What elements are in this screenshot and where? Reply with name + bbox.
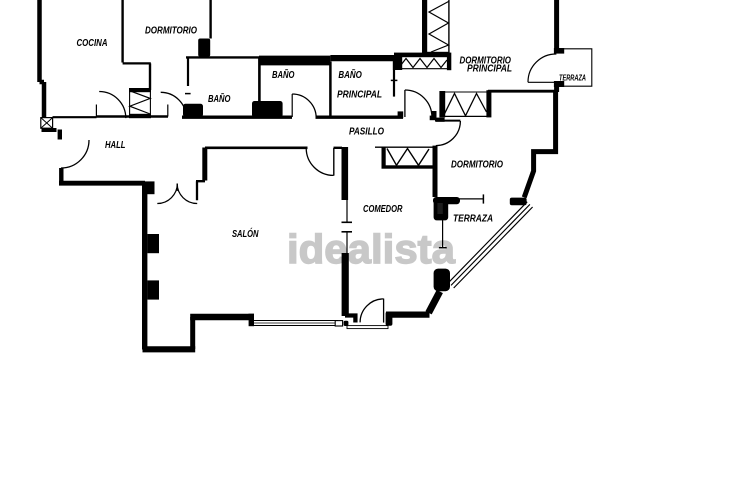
svg-text:HALL: HALL xyxy=(105,140,126,151)
svg-text:BAÑO: BAÑO xyxy=(338,68,362,81)
svg-text:PRINCIPAL: PRINCIPAL xyxy=(337,90,382,101)
svg-text:TERRAZA: TERRAZA xyxy=(453,213,493,224)
svg-text:COMEDOR: COMEDOR xyxy=(363,204,403,215)
svg-text:idealista: idealista xyxy=(287,226,456,272)
svg-text:SALÓN: SALÓN xyxy=(232,227,259,240)
svg-text:PASILLO: PASILLO xyxy=(349,126,384,138)
svg-text:TERRAZA: TERRAZA xyxy=(559,73,586,82)
svg-text:PRINCIPAL: PRINCIPAL xyxy=(467,64,512,75)
svg-text:DORMITORIO: DORMITORIO xyxy=(451,160,503,171)
svg-text:DORMITORIO: DORMITORIO xyxy=(145,26,197,37)
svg-text:BAÑO: BAÑO xyxy=(208,92,231,105)
svg-text:BAÑO: BAÑO xyxy=(272,68,295,81)
svg-text:COCINA: COCINA xyxy=(77,38,108,49)
